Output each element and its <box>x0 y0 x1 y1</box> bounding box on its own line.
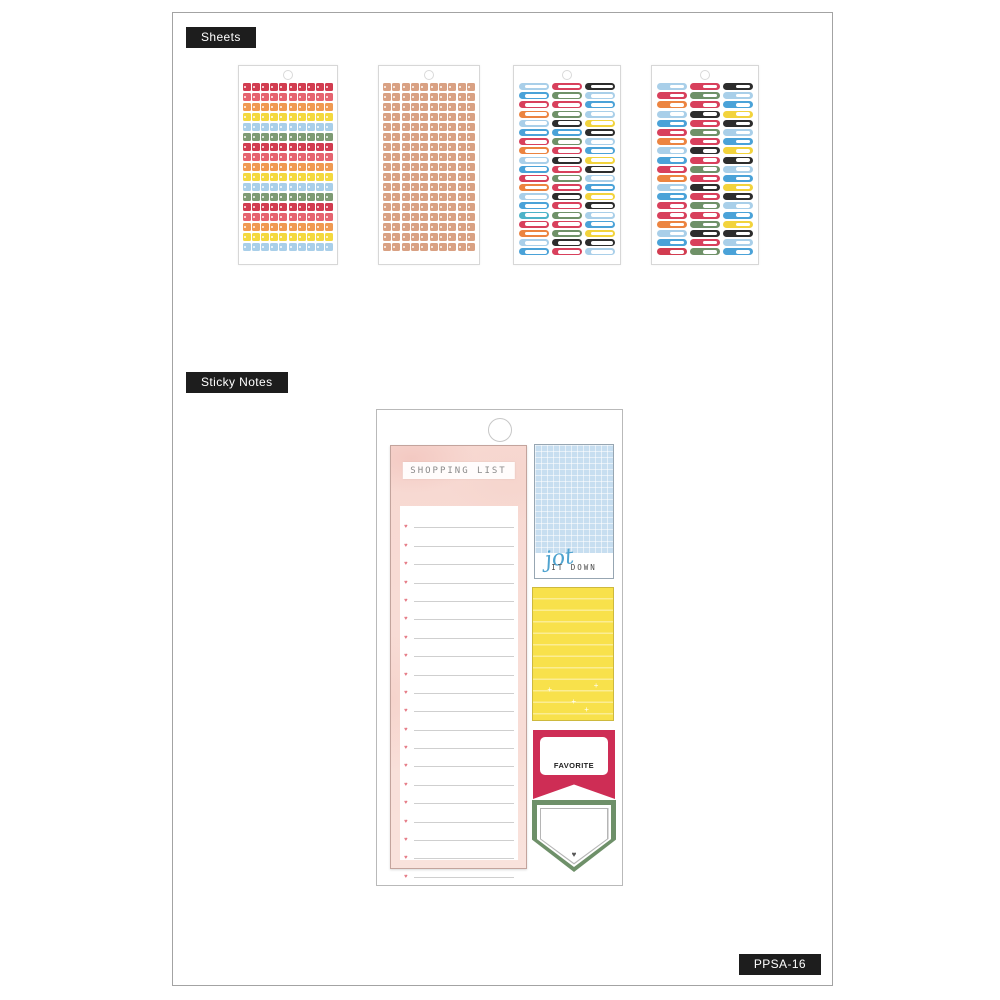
square-sticker <box>430 103 438 111</box>
label-sticker <box>690 83 720 90</box>
square-sticker <box>448 153 456 161</box>
label-sticker <box>690 101 720 108</box>
sticker-row <box>243 93 333 101</box>
square-sticker <box>392 223 400 231</box>
square-sticker <box>261 143 269 151</box>
square-sticker <box>402 123 410 131</box>
heart-bullet-icon: ♥ <box>404 598 408 604</box>
square-sticker <box>458 123 466 131</box>
square-sticker <box>243 123 251 131</box>
square-sticker <box>430 153 438 161</box>
square-sticker <box>458 193 466 201</box>
label-sticker <box>552 83 582 90</box>
square-sticker <box>307 223 315 231</box>
square-sticker <box>298 163 306 171</box>
sticker-row <box>243 123 333 131</box>
square-sticker <box>439 223 447 231</box>
square-sticker <box>430 183 438 191</box>
list-line: ♥ <box>414 528 514 546</box>
square-sticker <box>448 223 456 231</box>
square-sticker <box>279 93 287 101</box>
label-sticker <box>690 239 720 246</box>
sticker-row <box>243 223 333 231</box>
square-sticker <box>402 213 410 221</box>
label-sticker <box>723 147 753 154</box>
sticker-row <box>383 173 475 181</box>
green-pennant-note: ♥ <box>532 800 616 872</box>
label-sticker <box>519 230 549 237</box>
square-sticker <box>420 203 428 211</box>
square-sticker <box>467 143 475 151</box>
label-sticker <box>519 120 549 127</box>
square-sticker <box>467 153 475 161</box>
square-sticker <box>270 193 278 201</box>
square-sticker <box>411 113 419 121</box>
square-sticker <box>261 193 269 201</box>
sticker-row <box>383 233 475 241</box>
square-sticker <box>252 123 260 131</box>
square-sticker <box>270 133 278 141</box>
square-sticker <box>458 183 466 191</box>
sticker-sheet-tan-squares <box>378 65 480 265</box>
heart-bullet-icon: ♥ <box>404 874 408 880</box>
square-sticker <box>420 243 428 251</box>
square-sticker <box>289 163 297 171</box>
heart-bullet-icon: ♥ <box>404 708 408 714</box>
list-line: ♥ <box>414 694 514 712</box>
label-sticker <box>690 230 720 237</box>
square-sticker <box>261 203 269 211</box>
square-sticker <box>279 223 287 231</box>
square-sticker <box>307 203 315 211</box>
square-sticker <box>298 183 306 191</box>
square-sticker <box>448 133 456 141</box>
square-sticker <box>439 203 447 211</box>
sticker-row <box>243 213 333 221</box>
sticker-grid <box>239 83 337 251</box>
square-sticker <box>261 103 269 111</box>
square-sticker <box>243 133 251 141</box>
square-sticker <box>279 213 287 221</box>
square-sticker <box>420 133 428 141</box>
square-sticker <box>298 93 306 101</box>
list-line: ♥ <box>414 767 514 785</box>
square-sticker <box>383 163 391 171</box>
square-sticker <box>307 93 315 101</box>
square-sticker <box>402 143 410 151</box>
heart-bullet-icon: ♥ <box>404 690 408 696</box>
square-sticker <box>261 183 269 191</box>
square-sticker <box>298 213 306 221</box>
square-sticker <box>439 183 447 191</box>
list-line: ♥ <box>414 620 514 638</box>
square-sticker <box>316 163 324 171</box>
square-sticker <box>298 153 306 161</box>
label-sticker <box>723 129 753 136</box>
square-sticker <box>420 153 428 161</box>
sticker-row <box>519 83 615 90</box>
square-sticker <box>420 193 428 201</box>
square-sticker <box>243 143 251 151</box>
square-sticker <box>307 233 315 241</box>
square-sticker <box>270 223 278 231</box>
square-sticker <box>420 83 428 91</box>
label-sticker <box>519 221 549 228</box>
square-sticker <box>307 163 315 171</box>
sticker-row <box>383 203 475 211</box>
label-sticker <box>552 101 582 108</box>
square-sticker <box>439 173 447 181</box>
sticker-row <box>519 92 615 99</box>
sticker-row <box>383 133 475 141</box>
square-sticker <box>307 153 315 161</box>
square-sticker <box>458 233 466 241</box>
square-sticker <box>392 213 400 221</box>
sheets-section-label: Sheets <box>186 27 256 48</box>
square-sticker <box>383 143 391 151</box>
label-sticker <box>552 239 582 246</box>
sticker-row <box>657 120 753 127</box>
square-sticker <box>252 233 260 241</box>
sticker-row <box>383 113 475 121</box>
sticker-grid <box>379 83 479 251</box>
sticker-row <box>519 111 615 118</box>
square-sticker <box>261 83 269 91</box>
label-sticker <box>552 157 582 164</box>
square-sticker <box>430 203 438 211</box>
square-sticker <box>279 103 287 111</box>
square-sticker <box>270 203 278 211</box>
label-sticker <box>690 193 720 200</box>
square-sticker <box>439 123 447 131</box>
label-sticker <box>657 138 687 145</box>
label-sticker <box>657 193 687 200</box>
square-sticker <box>458 243 466 251</box>
label-sticker <box>657 166 687 173</box>
sticker-sheet-outline-labels <box>513 65 621 265</box>
square-sticker <box>383 83 391 91</box>
square-sticker <box>467 223 475 231</box>
hang-hole-icon <box>488 418 512 442</box>
label-sticker <box>657 239 687 246</box>
square-sticker <box>325 153 333 161</box>
shopping-list-lines: ♥♥♥♥♥♥♥♥♥♥♥♥♥♥♥♥♥♥♥♥ <box>400 506 518 860</box>
favorite-flag-note: FAVORITE <box>533 730 615 799</box>
label-sticker <box>657 175 687 182</box>
square-sticker <box>316 83 324 91</box>
square-sticker <box>420 213 428 221</box>
list-line: ♥ <box>414 749 514 767</box>
square-sticker <box>252 173 260 181</box>
list-line: ♥ <box>414 823 514 841</box>
sticker-row <box>243 243 333 251</box>
square-sticker <box>392 183 400 191</box>
heart-bullet-icon: ♥ <box>404 561 408 567</box>
sticker-sheet-solid-labels <box>651 65 759 265</box>
square-sticker <box>411 213 419 221</box>
square-sticker <box>270 83 278 91</box>
label-sticker <box>585 202 615 209</box>
square-sticker <box>316 103 324 111</box>
sticker-row <box>519 138 615 145</box>
square-sticker <box>289 113 297 121</box>
square-sticker <box>316 243 324 251</box>
square-sticker <box>392 163 400 171</box>
square-sticker <box>448 183 456 191</box>
square-sticker <box>458 173 466 181</box>
sticker-row <box>519 101 615 108</box>
square-sticker <box>392 83 400 91</box>
square-sticker <box>458 153 466 161</box>
label-sticker <box>519 157 549 164</box>
square-sticker <box>270 233 278 241</box>
square-sticker <box>279 163 287 171</box>
sticker-row <box>657 175 753 182</box>
list-line: ♥ <box>414 565 514 583</box>
square-sticker <box>316 133 324 141</box>
square-sticker <box>392 173 400 181</box>
square-sticker <box>467 103 475 111</box>
square-sticker <box>467 243 475 251</box>
square-sticker <box>252 143 260 151</box>
square-sticker <box>439 163 447 171</box>
label-sticker <box>519 248 549 255</box>
label-sticker <box>690 129 720 136</box>
label-sticker <box>519 92 549 99</box>
square-sticker <box>270 153 278 161</box>
square-sticker <box>325 203 333 211</box>
square-sticker <box>402 153 410 161</box>
square-sticker <box>316 113 324 121</box>
list-line: ♥ <box>414 602 514 620</box>
sticker-row <box>243 193 333 201</box>
square-sticker <box>261 93 269 101</box>
label-sticker <box>552 184 582 191</box>
sticker-row <box>383 163 475 171</box>
square-sticker <box>243 173 251 181</box>
square-sticker <box>252 153 260 161</box>
square-sticker <box>289 133 297 141</box>
square-sticker <box>243 113 251 121</box>
square-sticker <box>298 133 306 141</box>
sticker-row <box>383 243 475 251</box>
square-sticker <box>307 193 315 201</box>
square-sticker <box>307 213 315 221</box>
square-sticker <box>458 103 466 111</box>
label-sticker <box>519 83 549 90</box>
square-sticker <box>448 123 456 131</box>
square-sticker <box>261 233 269 241</box>
square-sticker <box>383 93 391 101</box>
square-sticker <box>430 93 438 101</box>
sticker-row <box>243 143 333 151</box>
sticker-grid <box>652 83 758 255</box>
square-sticker <box>439 93 447 101</box>
square-sticker <box>448 93 456 101</box>
label-sticker <box>657 120 687 127</box>
sticker-row <box>657 129 753 136</box>
square-sticker <box>316 223 324 231</box>
sku-badge: PPSA-16 <box>739 954 821 975</box>
sparkle-icon: + <box>594 682 599 690</box>
square-sticker <box>402 83 410 91</box>
square-sticker <box>261 173 269 181</box>
square-sticker <box>430 173 438 181</box>
square-sticker <box>448 103 456 111</box>
square-sticker <box>383 203 391 211</box>
label-sticker <box>723 248 753 255</box>
label-sticker <box>690 184 720 191</box>
square-sticker <box>383 103 391 111</box>
square-sticker <box>467 133 475 141</box>
square-sticker <box>411 83 419 91</box>
square-sticker <box>307 183 315 191</box>
label-sticker <box>585 129 615 136</box>
square-sticker <box>392 103 400 111</box>
label-sticker <box>690 212 720 219</box>
square-sticker <box>298 103 306 111</box>
square-sticker <box>243 223 251 231</box>
square-sticker <box>270 183 278 191</box>
label-sticker <box>552 138 582 145</box>
square-sticker <box>289 203 297 211</box>
sticker-row <box>243 153 333 161</box>
square-sticker <box>383 153 391 161</box>
square-sticker <box>430 243 438 251</box>
label-sticker <box>552 129 582 136</box>
heart-bullet-icon: ♥ <box>404 616 408 622</box>
square-sticker <box>458 93 466 101</box>
heart-bullet-icon: ♥ <box>404 580 408 586</box>
label-sticker <box>723 83 753 90</box>
list-line: ♥ <box>414 639 514 657</box>
sticker-row <box>657 138 753 145</box>
sticker-row <box>657 202 753 209</box>
square-sticker <box>458 203 466 211</box>
square-sticker <box>279 83 287 91</box>
square-sticker <box>243 203 251 211</box>
list-line: ♥ <box>414 786 514 804</box>
square-sticker <box>402 113 410 121</box>
label-sticker <box>552 92 582 99</box>
sparkle-icon: + <box>547 686 552 694</box>
label-sticker <box>657 101 687 108</box>
label-sticker <box>585 101 615 108</box>
label-sticker <box>552 248 582 255</box>
square-sticker <box>325 223 333 231</box>
list-line: ♥ <box>414 510 514 528</box>
square-sticker <box>243 233 251 241</box>
square-sticker <box>252 193 260 201</box>
square-sticker <box>261 123 269 131</box>
sparkle-icon: + <box>571 698 576 706</box>
label-sticker <box>585 248 615 255</box>
sticker-row <box>243 233 333 241</box>
square-sticker <box>243 93 251 101</box>
label-sticker <box>690 92 720 99</box>
sticker-row <box>243 203 333 211</box>
square-sticker <box>298 243 306 251</box>
list-line: ♥ <box>414 859 514 877</box>
label-sticker <box>552 120 582 127</box>
square-sticker <box>430 213 438 221</box>
square-sticker <box>392 123 400 131</box>
square-sticker <box>439 243 447 251</box>
square-sticker <box>448 143 456 151</box>
square-sticker <box>307 113 315 121</box>
sticker-row <box>657 239 753 246</box>
square-sticker <box>270 93 278 101</box>
square-sticker <box>270 123 278 131</box>
square-sticker <box>316 123 324 131</box>
square-sticker <box>289 83 297 91</box>
label-sticker <box>552 147 582 154</box>
square-sticker <box>243 163 251 171</box>
square-sticker <box>411 153 419 161</box>
square-sticker <box>402 223 410 231</box>
sticker-row <box>519 212 615 219</box>
square-sticker <box>252 103 260 111</box>
square-sticker <box>316 143 324 151</box>
square-sticker <box>458 223 466 231</box>
label-sticker <box>585 221 615 228</box>
square-sticker <box>325 143 333 151</box>
label-sticker <box>723 239 753 246</box>
heart-bullet-icon: ♥ <box>404 635 408 641</box>
heart-bullet-icon: ♥ <box>404 782 408 788</box>
square-sticker <box>392 153 400 161</box>
square-sticker <box>383 193 391 201</box>
label-sticker <box>723 120 753 127</box>
label-sticker <box>585 230 615 237</box>
square-sticker <box>467 193 475 201</box>
square-sticker <box>289 103 297 111</box>
square-sticker <box>448 83 456 91</box>
square-sticker <box>411 123 419 131</box>
sticker-row <box>657 101 753 108</box>
label-sticker <box>657 111 687 118</box>
label-sticker <box>690 202 720 209</box>
square-sticker <box>458 213 466 221</box>
sparkle-icon: + <box>584 706 589 714</box>
label-sticker <box>723 166 753 173</box>
label-sticker <box>690 166 720 173</box>
square-sticker <box>458 133 466 141</box>
sticker-row <box>383 143 475 151</box>
label-sticker <box>585 157 615 164</box>
hang-hole-icon <box>424 70 434 80</box>
sticker-row <box>657 221 753 228</box>
label-sticker <box>690 221 720 228</box>
heart-bullet-icon: ♥ <box>404 745 408 751</box>
square-sticker <box>243 153 251 161</box>
label-sticker <box>723 101 753 108</box>
label-sticker <box>690 138 720 145</box>
square-sticker <box>439 143 447 151</box>
label-sticker <box>723 138 753 145</box>
square-sticker <box>279 193 287 201</box>
square-sticker <box>383 173 391 181</box>
square-sticker <box>261 113 269 121</box>
label-sticker <box>690 120 720 127</box>
square-sticker <box>448 233 456 241</box>
square-sticker <box>325 103 333 111</box>
square-sticker <box>448 173 456 181</box>
square-sticker <box>307 143 315 151</box>
sticker-row <box>519 175 615 182</box>
label-sticker <box>585 212 615 219</box>
square-sticker <box>458 113 466 121</box>
